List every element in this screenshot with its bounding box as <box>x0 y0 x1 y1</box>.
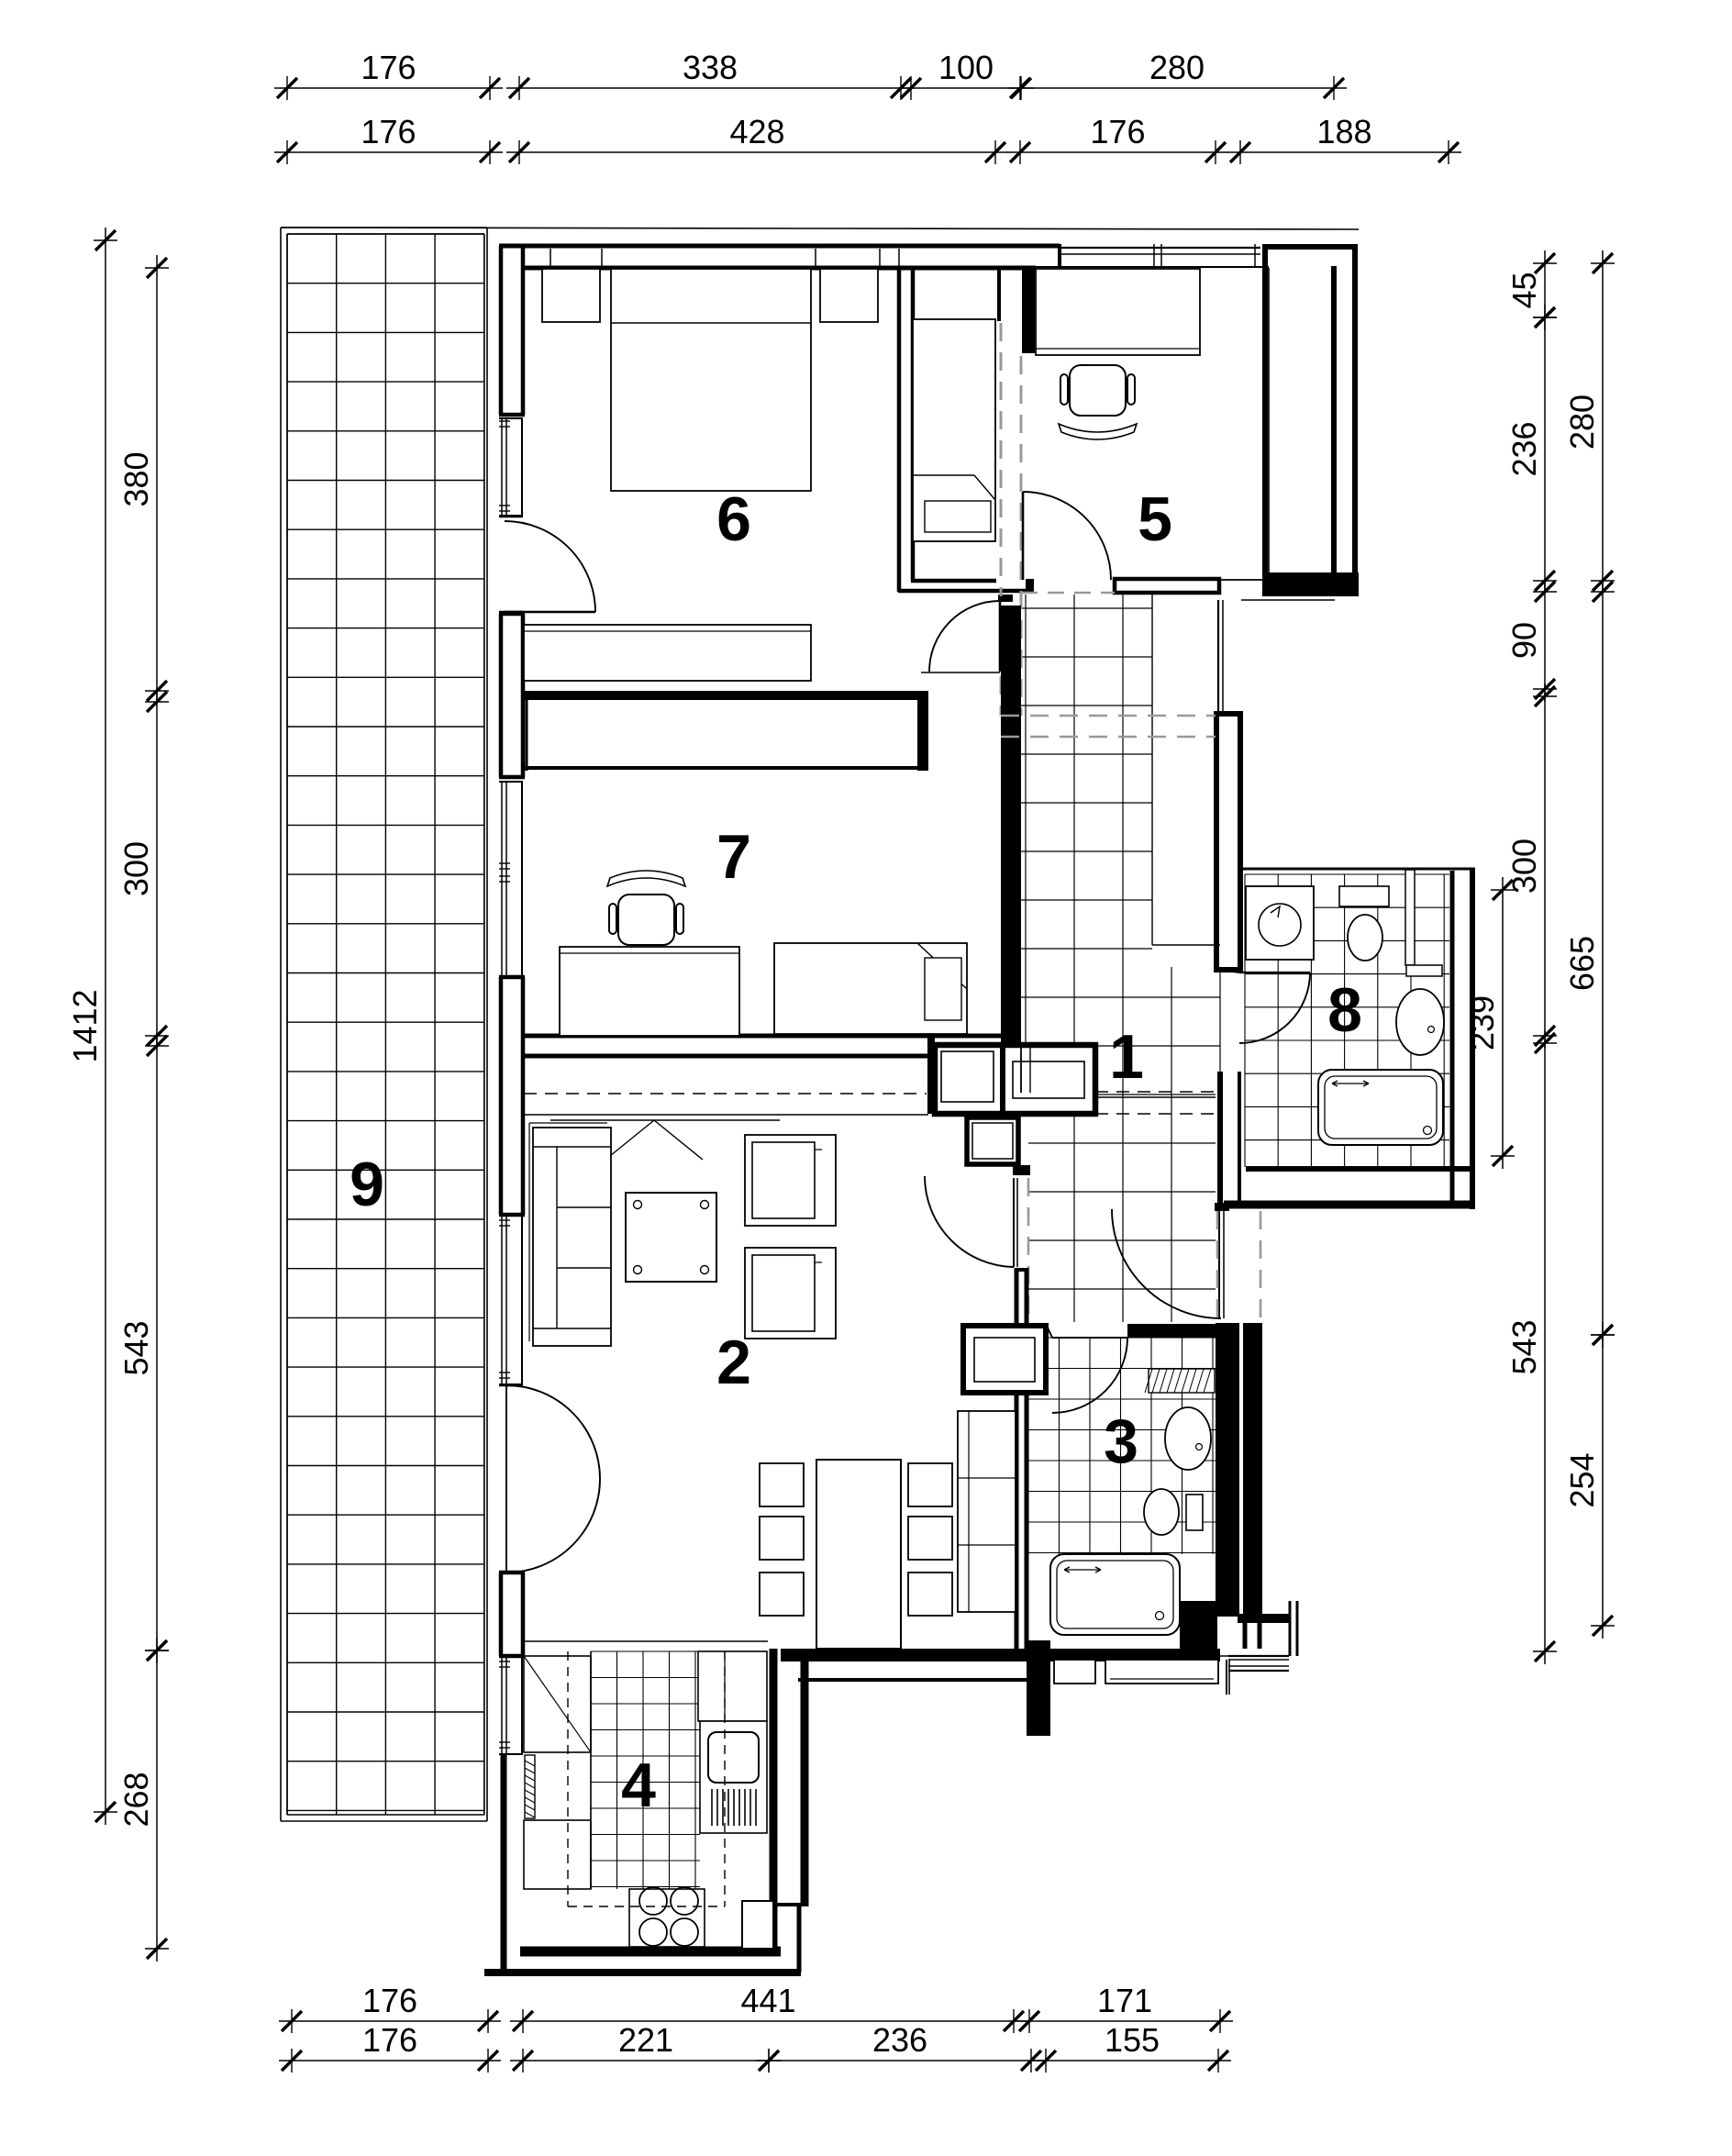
svg-text:280: 280 <box>1563 395 1601 450</box>
svg-text:665: 665 <box>1563 936 1601 991</box>
svg-text:2: 2 <box>716 1328 751 1397</box>
svg-text:171: 171 <box>1097 1982 1152 2019</box>
svg-text:90: 90 <box>1505 622 1543 659</box>
svg-text:338: 338 <box>683 49 738 86</box>
svg-text:176: 176 <box>361 49 416 86</box>
svg-text:543: 543 <box>117 1320 155 1375</box>
svg-text:300: 300 <box>1505 839 1543 894</box>
svg-text:268: 268 <box>117 1772 155 1827</box>
svg-text:176: 176 <box>362 1982 417 2019</box>
svg-text:8: 8 <box>1327 975 1362 1045</box>
svg-text:280: 280 <box>1149 49 1205 86</box>
svg-text:236: 236 <box>872 2021 927 2059</box>
svg-text:6: 6 <box>716 484 751 554</box>
svg-text:176: 176 <box>1090 113 1145 150</box>
svg-text:45: 45 <box>1505 272 1543 308</box>
svg-text:380: 380 <box>117 451 155 506</box>
svg-text:236: 236 <box>1505 421 1543 476</box>
svg-text:239: 239 <box>1463 995 1501 1050</box>
svg-text:7: 7 <box>716 822 751 892</box>
svg-text:155: 155 <box>1105 2021 1160 2059</box>
svg-text:428: 428 <box>729 113 784 150</box>
svg-text:9: 9 <box>350 1150 384 1219</box>
svg-text:254: 254 <box>1563 1452 1601 1507</box>
svg-text:300: 300 <box>117 841 155 896</box>
svg-text:100: 100 <box>938 49 994 86</box>
svg-text:188: 188 <box>1316 113 1371 150</box>
svg-text:5: 5 <box>1138 484 1172 554</box>
svg-text:4: 4 <box>621 1750 656 1820</box>
svg-text:543: 543 <box>1505 1319 1543 1374</box>
svg-text:221: 221 <box>618 2021 673 2059</box>
svg-text:176: 176 <box>362 2021 417 2059</box>
svg-text:441: 441 <box>740 1982 795 2019</box>
svg-text:176: 176 <box>361 113 416 150</box>
svg-text:1412: 1412 <box>66 989 104 1062</box>
svg-text:1: 1 <box>1109 1022 1144 1092</box>
svg-text:3: 3 <box>1104 1406 1138 1476</box>
